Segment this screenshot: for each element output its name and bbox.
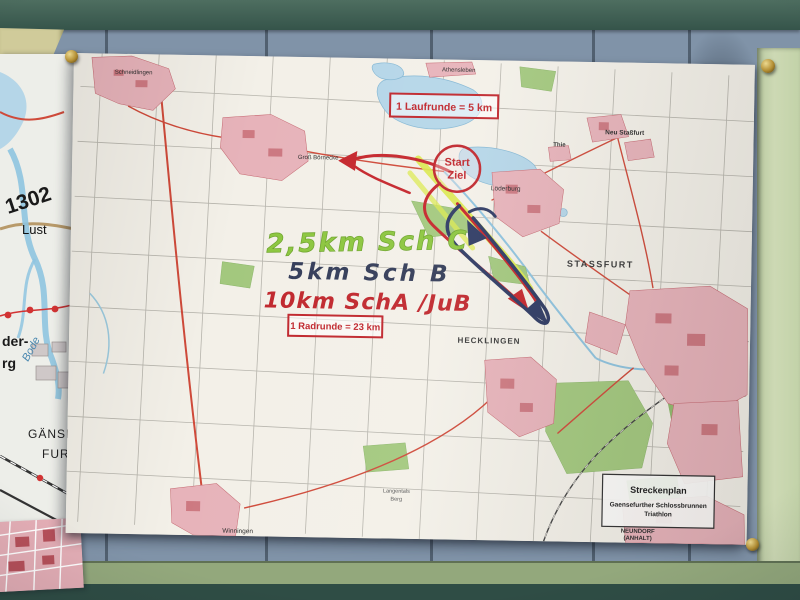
schneidlingen-label: Schneidlingen xyxy=(115,70,153,77)
laufrunde-box: 1 Laufrunde = 5 km xyxy=(390,94,498,119)
legend-line2: Triathlon xyxy=(644,511,672,518)
course-note-red: 10km SchA /JuB xyxy=(263,288,471,317)
cut-label-der: der- xyxy=(2,333,29,349)
board-top-beam xyxy=(0,0,800,30)
cut-label-rg: rg xyxy=(2,355,16,371)
radrunde-box: 1 Radrunde = 23 km xyxy=(288,315,382,338)
push-pin-top-left xyxy=(65,50,78,63)
route-map-paper: 1 Laufrunde = 5 km 1 Radrunde = 23 km St… xyxy=(66,53,755,545)
neundorf-label-1: NEUNDORF xyxy=(621,529,655,536)
board-bottom-strip xyxy=(0,561,800,586)
stassfurt-label: STASSFURT xyxy=(567,259,634,270)
loederburg-label: Löderburg xyxy=(491,185,521,193)
athensleben-label: Athensleben xyxy=(442,67,475,74)
laufrunde-label: 1 Laufrunde = 5 km xyxy=(396,101,492,115)
push-pin-top-right xyxy=(761,59,775,73)
start-ziel-marker: Start Ziel xyxy=(434,145,481,192)
neu-stassfurt-label: Neu Staßfurt xyxy=(605,129,645,137)
course-note-blue: 5km Sch B xyxy=(288,259,451,288)
lust-label: Lust xyxy=(22,222,47,237)
board-bottom-beam xyxy=(0,584,800,600)
ziel-label: Ziel xyxy=(447,170,466,182)
board-right-plank xyxy=(757,48,800,566)
radrunde-label: 1 Radrunde = 23 km xyxy=(290,321,380,334)
langentals-label-1: Langentals xyxy=(383,488,410,494)
hecklingen-label: HECKLINGEN xyxy=(458,336,521,346)
course-note-green: 2,5km Sch C xyxy=(266,226,469,260)
thie-label: Thie xyxy=(553,142,566,148)
legend-box: Streckenplan Gaensefurther Schlossbrunne… xyxy=(602,474,715,528)
start-label: Start xyxy=(445,156,471,168)
legend-title: Streckenplan xyxy=(630,485,687,496)
winningen-label: Winningen xyxy=(222,528,253,536)
push-pin-bottom-right xyxy=(746,538,759,551)
langentals-label-2: Berg xyxy=(390,497,402,503)
neundorf-label-2: (ANHALT) xyxy=(623,536,651,542)
gross-boernecke-label: Groß Börnecke xyxy=(298,155,339,162)
